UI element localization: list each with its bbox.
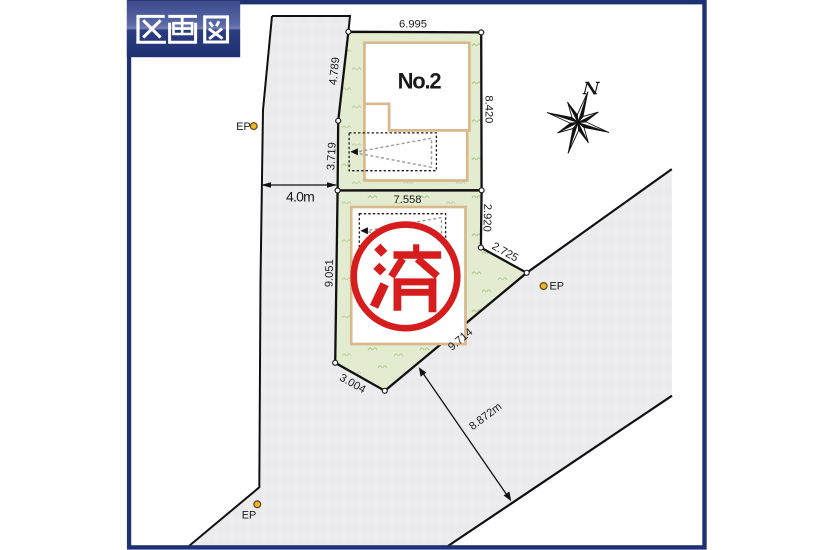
svg-text:EP: EP (242, 510, 256, 522)
svg-text:EP: EP (236, 121, 250, 133)
svg-text:3.719: 3.719 (325, 142, 338, 171)
svg-text:8.420: 8.420 (483, 95, 495, 123)
svg-text:2.920: 2.920 (481, 204, 493, 232)
svg-text:6.995: 6.995 (399, 19, 427, 31)
svg-text:4.0m: 4.0m (286, 188, 314, 204)
svg-text:No.2: No.2 (398, 68, 442, 93)
svg-text:7.558: 7.558 (394, 194, 422, 206)
svg-text:EP: EP (550, 280, 564, 292)
svg-text:9.051: 9.051 (324, 259, 336, 287)
